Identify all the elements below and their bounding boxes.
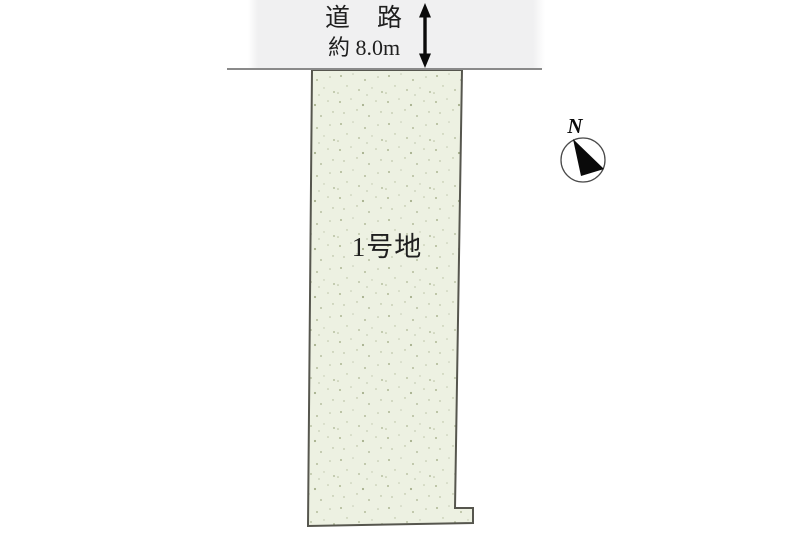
- road-width-arrow-icon: [419, 3, 431, 68]
- compass-north-label: N: [560, 114, 590, 139]
- lot-1-label: 1号地: [327, 225, 447, 264]
- compass: [561, 138, 605, 182]
- site-plan: 道 路 約 8.0m: [0, 0, 801, 534]
- site-plan-canvas: [0, 0, 801, 534]
- lot-1-shape: [308, 70, 473, 526]
